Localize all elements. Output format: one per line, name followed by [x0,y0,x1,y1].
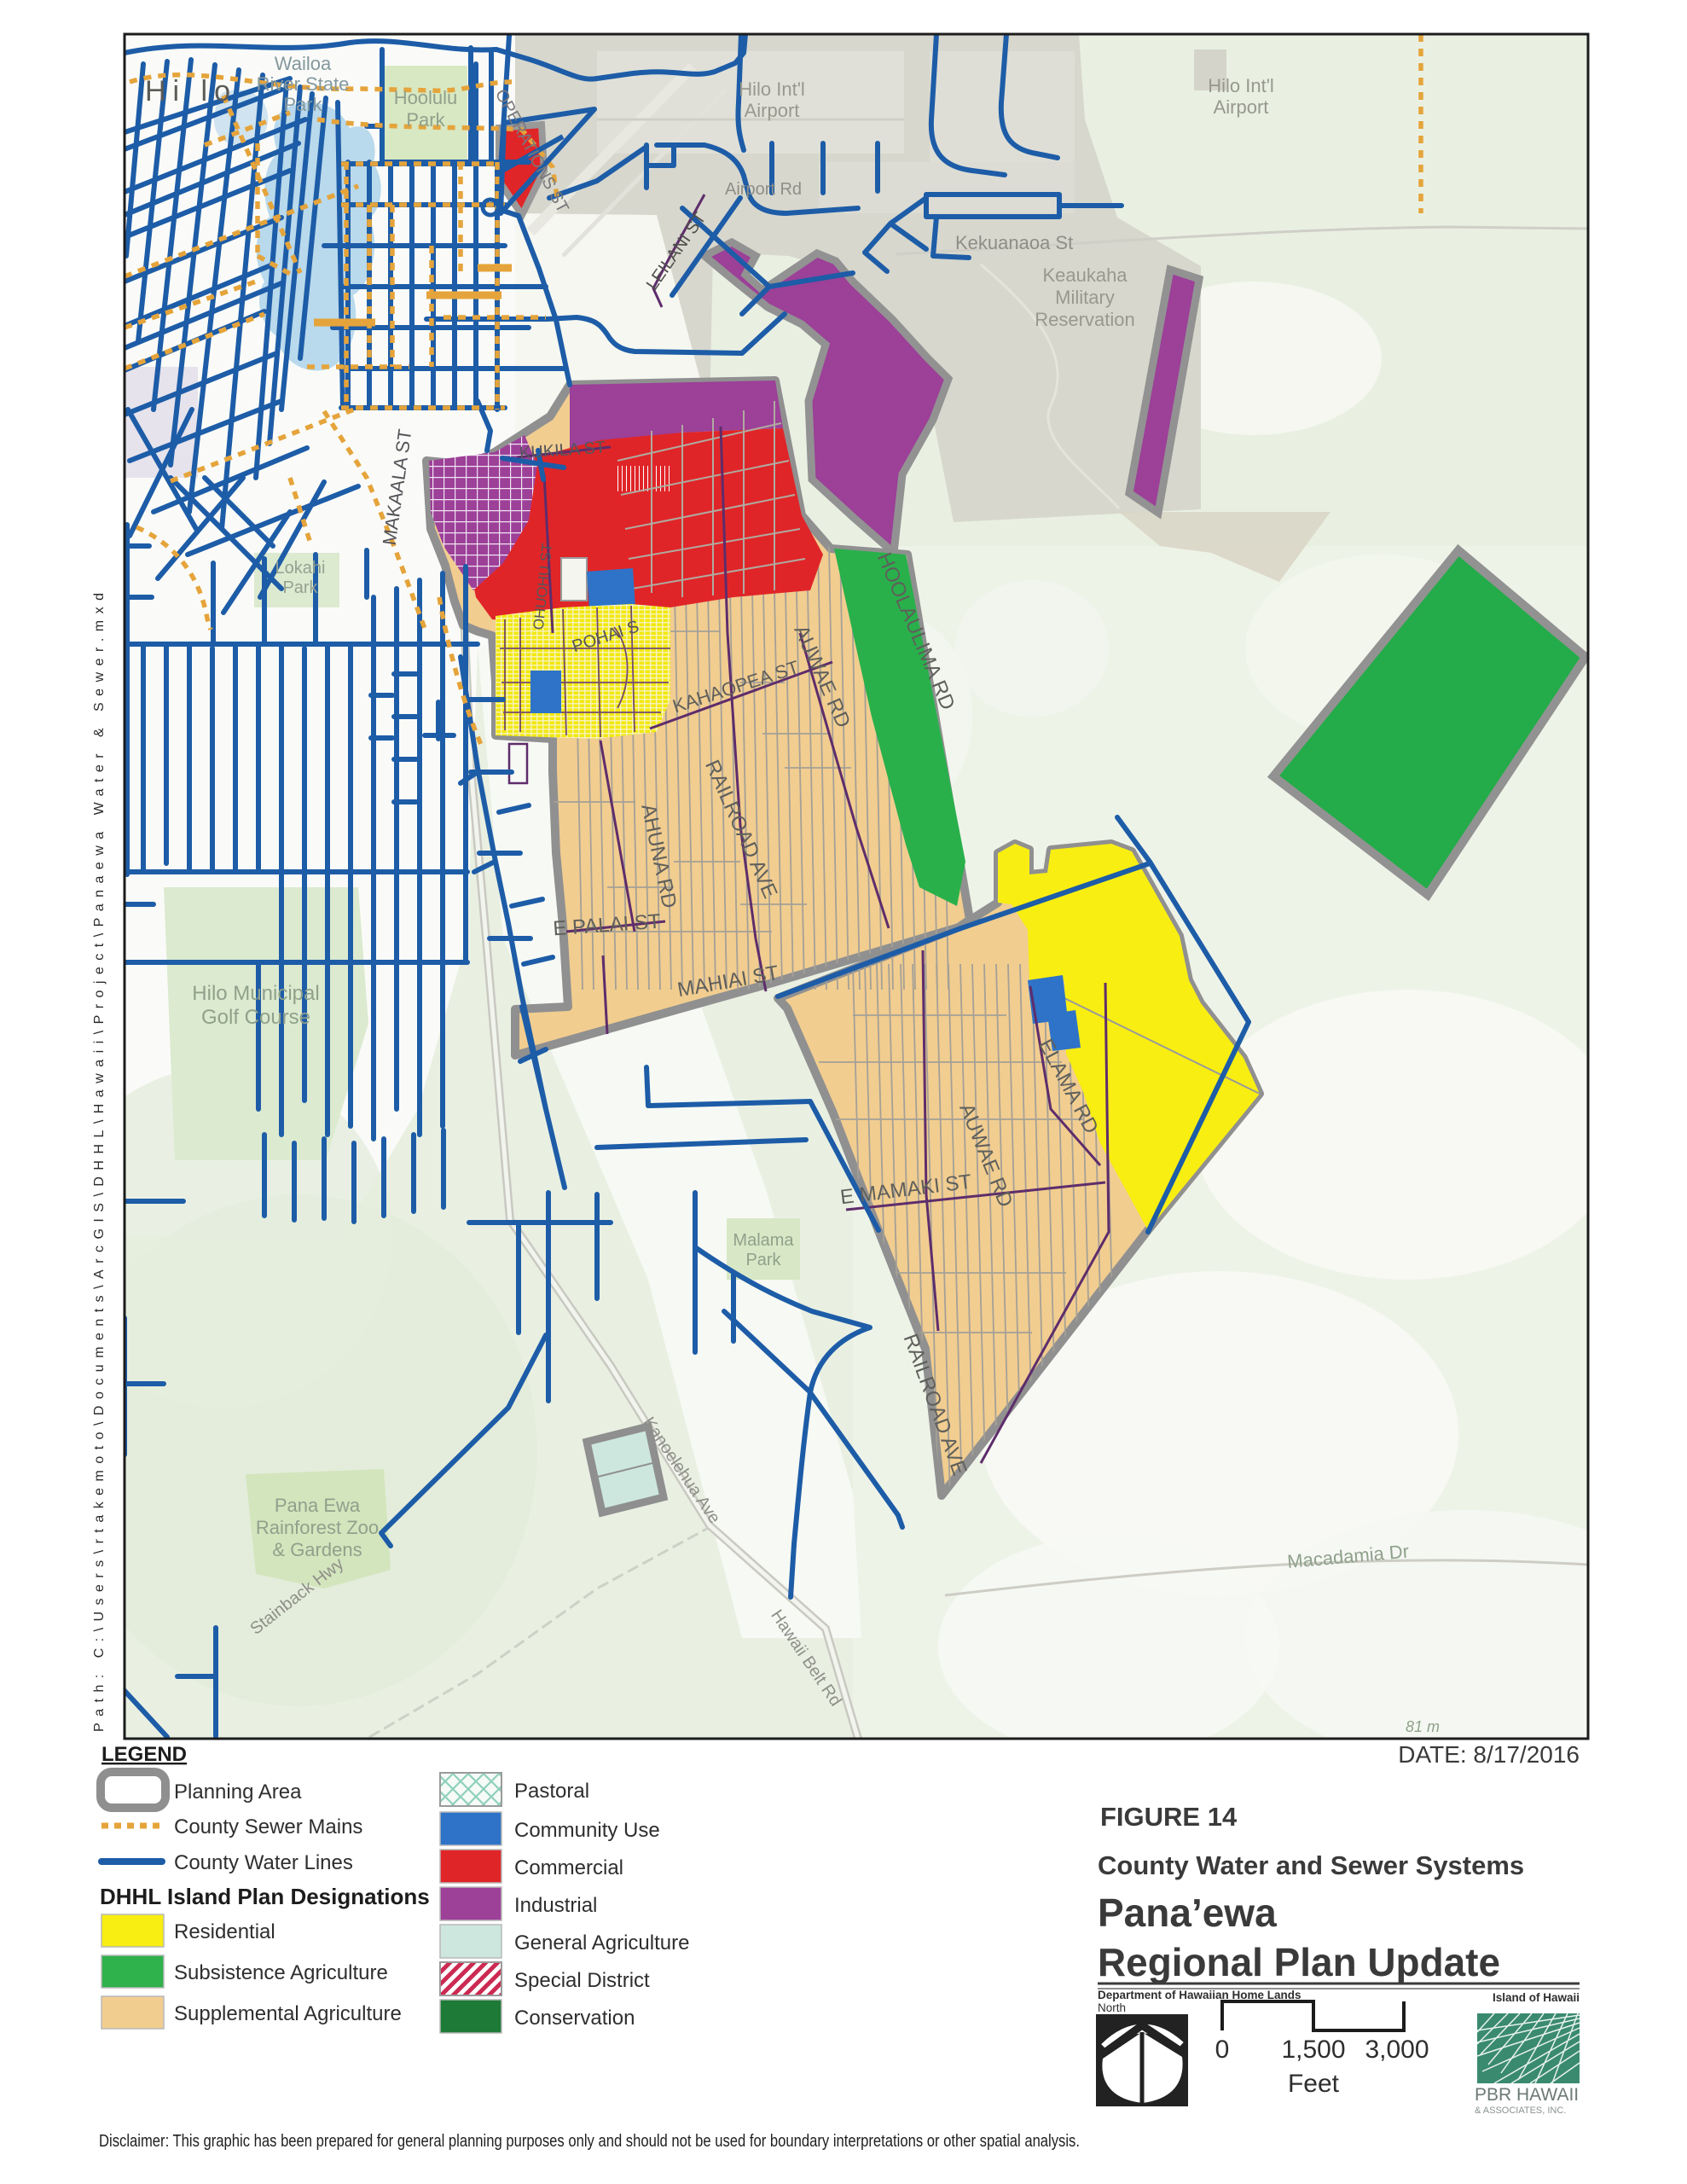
svg-text:Park: Park [283,94,322,115]
svg-text:FIGURE 14: FIGURE 14 [1100,1802,1238,1832]
svg-text:Pastoral: Pastoral [514,1780,589,1803]
svg-text:Park: Park [282,578,318,597]
svg-text:Pana Ewa: Pana Ewa [275,1495,361,1516]
svg-text:Hi lo: Hi lo [145,75,237,107]
svg-text:Malama: Malama [733,1231,794,1250]
svg-text:Community Use: Community Use [514,1819,660,1842]
svg-text:Hilo Int'l: Hilo Int'l [1208,75,1274,96]
svg-text:Airport: Airport [1214,96,1269,118]
svg-text:DHHL Island Plan Designations: DHHL Island Plan Designations [100,1884,430,1909]
svg-text:County Water Lines: County Water Lines [174,1851,353,1874]
svg-text:Industrial: Industrial [514,1894,597,1917]
svg-text:River State: River State [257,73,350,95]
svg-text:Airport: Airport [745,100,800,121]
svg-text:Subsistence Agriculture: Subsistence Agriculture [174,1961,388,1984]
svg-text:Reservation: Reservation [1035,309,1134,330]
svg-text:Wailoa: Wailoa [275,53,332,74]
svg-text:81 m: 81 m [1406,1718,1440,1735]
svg-text:Supplemental Agriculture: Supplemental Agriculture [174,2002,402,2025]
svg-text:Feet: Feet [1288,2070,1340,2098]
svg-text:& Gardens: & Gardens [272,1539,362,1560]
svg-text:PBR HAWAII: PBR HAWAII [1475,2085,1579,2105]
svg-text:LEGEND: LEGEND [101,1743,187,1766]
svg-text:Kekuanaoa St: Kekuanaoa St [955,232,1073,253]
svg-text:Commercial: Commercial [514,1856,623,1879]
svg-text:Planning Area: Planning Area [174,1780,302,1804]
svg-text:County Water and Sewer Systems: County Water and Sewer Systems [1098,1850,1524,1880]
svg-text:Hilo Municipal: Hilo Municipal [192,982,319,1005]
svg-text:0: 0 [1215,2036,1230,2064]
svg-text:DATE: 8/17/2016: DATE: 8/17/2016 [1398,1741,1580,1768]
svg-text:Rainforest Zoo: Rainforest Zoo [256,1517,379,1538]
svg-text:Park: Park [406,109,445,131]
svg-text:Conservation: Conservation [514,2007,635,2030]
svg-text:Park: Park [745,1251,781,1269]
svg-text:North: North [1098,2001,1126,2014]
svg-text:Special District: Special District [514,1969,650,1992]
svg-text:Department of Hawaiian Home La: Department of Hawaiian Home Lands [1098,1989,1301,2001]
svg-text:Airport Rd: Airport Rd [725,180,802,199]
svg-text:County Sewer Mains: County Sewer Mains [174,1815,362,1838]
svg-text:Hoolulu: Hoolulu [394,87,458,108]
svg-text:Golf Course: Golf Course [201,1006,310,1029]
svg-text:Regional Plan Update: Regional Plan Update [1098,1940,1500,1984]
svg-text:1,500: 1,500 [1281,2036,1345,2064]
svg-text:& ASSOCIATES, INC.: & ASSOCIATES, INC. [1475,2106,1566,2116]
svg-text:Hilo Int'l: Hilo Int'l [739,78,805,100]
svg-text:Military: Military [1055,287,1115,308]
svg-text:Lokahi: Lokahi [275,559,326,578]
svg-text:Disclaimer: This graphic has b: Disclaimer: This graphic has been prepar… [99,2132,1080,2151]
svg-text:General Agriculture: General Agriculture [514,1931,689,1955]
svg-text:Island of Hawaii: Island of Hawaii [1493,1991,1580,2004]
svg-text:Residential: Residential [174,1920,275,1943]
svg-text:Keaukaha: Keaukaha [1042,264,1128,286]
svg-text:3,000: 3,000 [1365,2036,1429,2064]
svg-text:Pana’ewa: Pana’ewa [1098,1891,1277,1935]
